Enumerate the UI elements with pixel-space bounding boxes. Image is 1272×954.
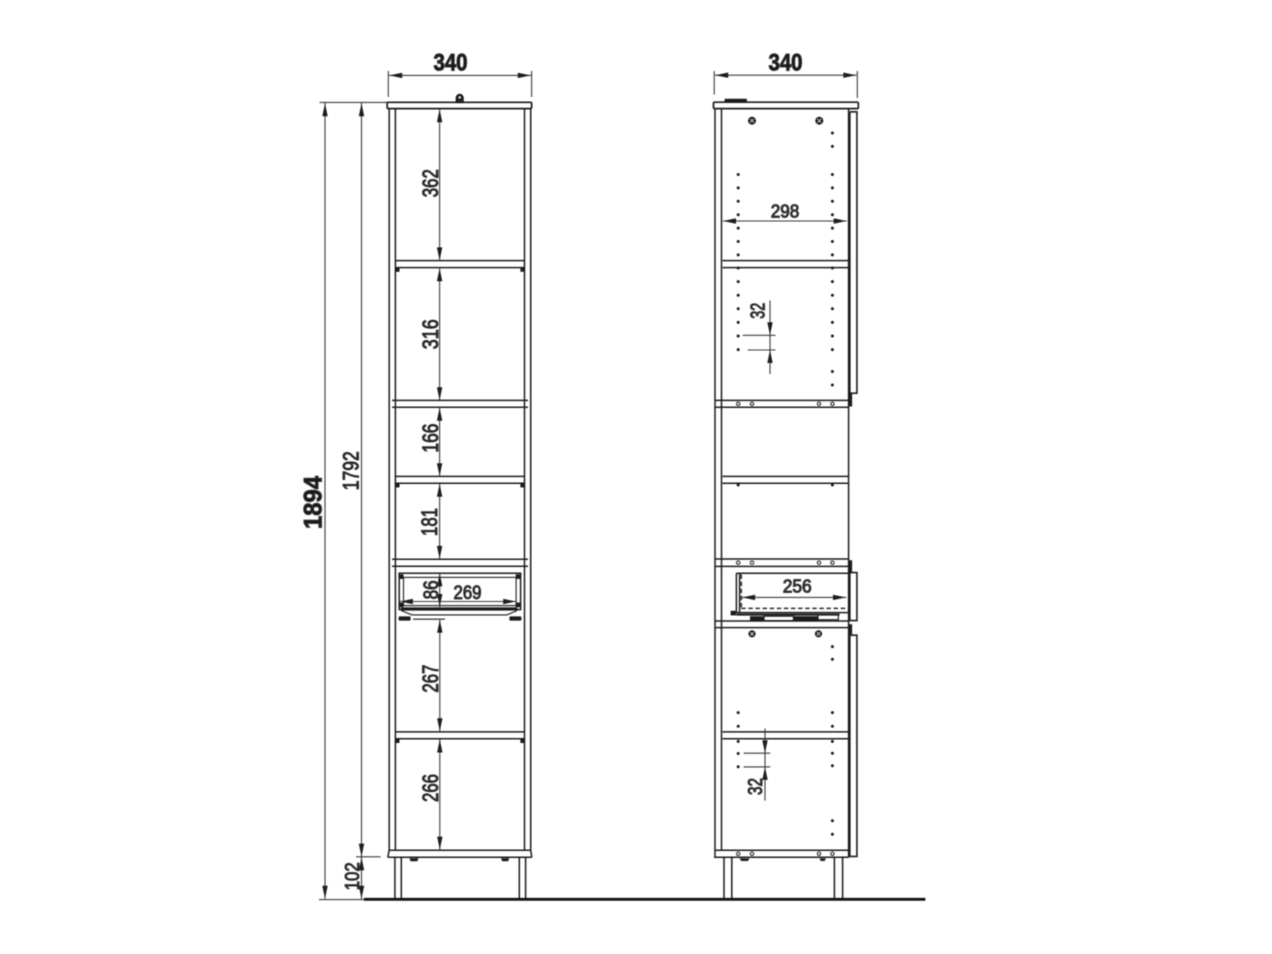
svg-text:1792: 1792 xyxy=(339,451,364,490)
svg-text:340: 340 xyxy=(434,50,468,77)
svg-text:86: 86 xyxy=(420,580,443,599)
svg-text:32: 32 xyxy=(748,303,770,319)
svg-text:102: 102 xyxy=(342,862,364,890)
svg-text:269: 269 xyxy=(454,583,482,604)
svg-text:298: 298 xyxy=(771,200,800,221)
svg-text:267: 267 xyxy=(418,665,443,693)
svg-text:362: 362 xyxy=(418,169,443,197)
svg-text:181: 181 xyxy=(417,508,442,536)
svg-text:1894: 1894 xyxy=(300,476,328,529)
svg-text:256: 256 xyxy=(783,576,812,597)
svg-text:266: 266 xyxy=(418,774,443,802)
svg-text:32: 32 xyxy=(744,778,767,795)
svg-text:316: 316 xyxy=(418,319,443,349)
svg-text:166: 166 xyxy=(418,424,443,453)
svg-text:340: 340 xyxy=(769,50,803,77)
